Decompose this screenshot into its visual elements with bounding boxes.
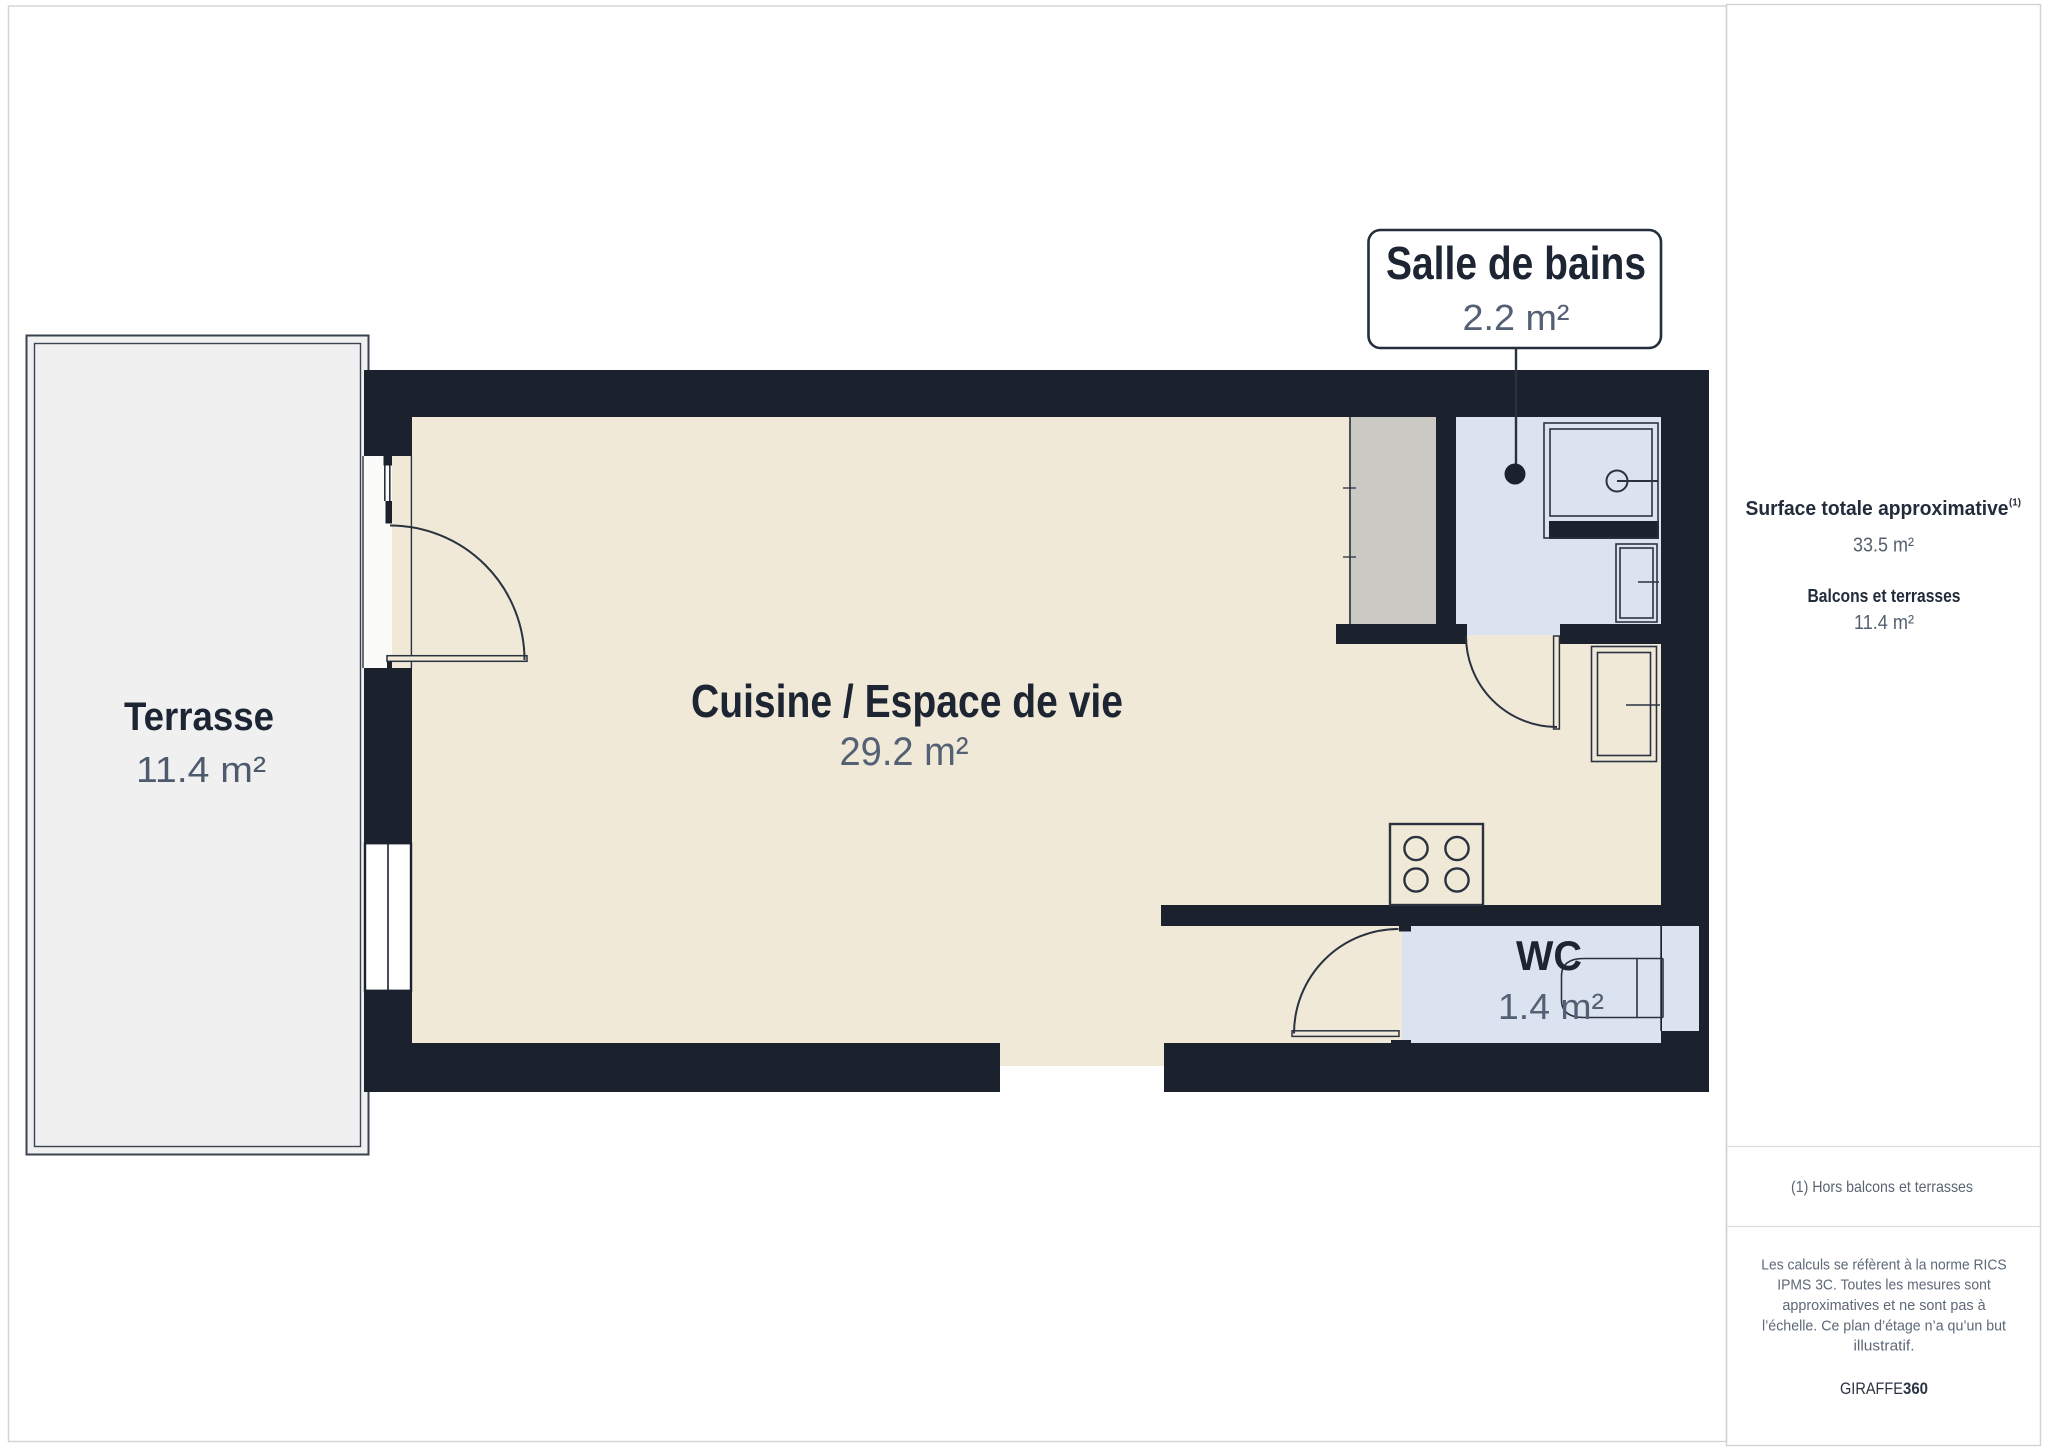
- svg-text:33.5 m²: 33.5 m²: [1853, 535, 1914, 557]
- svg-text:360: 360: [1903, 1380, 1928, 1398]
- svg-text:WC: WC: [1516, 932, 1582, 979]
- svg-text:l’échelle. Ce plan d’étage n’a: l’échelle. Ce plan d’étage n’a qu’un but: [1762, 1318, 2006, 1334]
- svg-text:approximatives et ne sont pas: approximatives et ne sont pas à: [1782, 1298, 1986, 1314]
- svg-text:11.4 m²: 11.4 m²: [136, 749, 266, 790]
- svg-text:Terrasse: Terrasse: [124, 695, 274, 739]
- svg-text:(1) Hors balcons et terrasses: (1) Hors balcons et terrasses: [1791, 1179, 1973, 1196]
- svg-text:GIRAFFE: GIRAFFE: [1840, 1380, 1903, 1398]
- svg-text:(1): (1): [2009, 497, 2021, 509]
- svg-text:Salle de bains: Salle de bains: [1386, 237, 1646, 289]
- svg-text:Cuisine / Espace de vie: Cuisine / Espace de vie: [691, 675, 1123, 727]
- svg-text:11.4 m²: 11.4 m²: [1854, 612, 1914, 634]
- svg-text:Les calculs se réfèrent à la n: Les calculs se réfèrent à la norme RICS: [1761, 1257, 2006, 1273]
- svg-text:IPMS 3C. Toutes les mesures so: IPMS 3C. Toutes les mesures sont: [1777, 1278, 1991, 1294]
- svg-text:1.4 m²: 1.4 m²: [1498, 986, 1604, 1027]
- svg-text:29.2 m²: 29.2 m²: [840, 730, 969, 774]
- svg-text:2.2 m²: 2.2 m²: [1463, 297, 1570, 338]
- svg-text:illustratif.: illustratif.: [1854, 1339, 1915, 1355]
- svg-text:Surface totale approximative: Surface totale approximative: [1746, 497, 2009, 520]
- svg-text:Balcons et terrasses: Balcons et terrasses: [1808, 586, 1961, 606]
